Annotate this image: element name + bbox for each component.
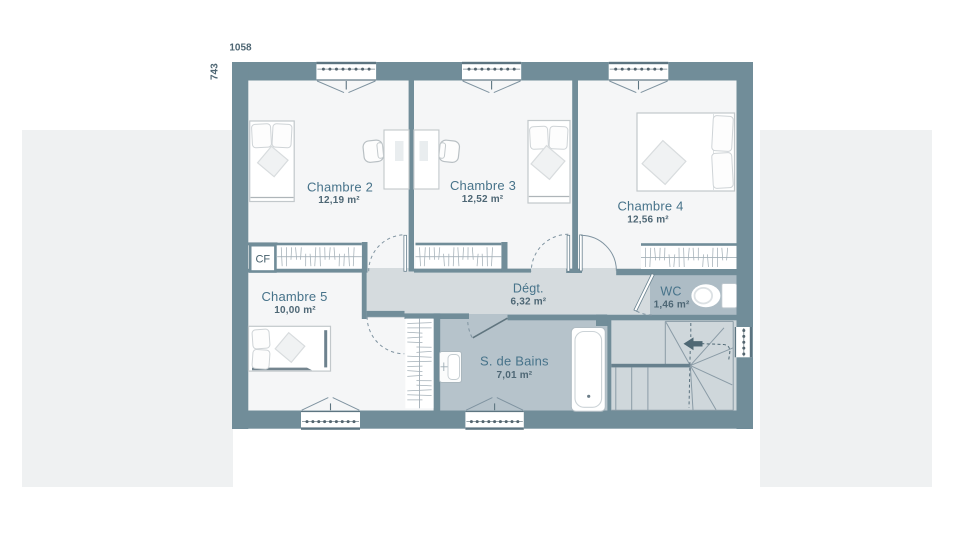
svg-text:1058: 1058 [229,43,252,54]
svg-text:7,01 m²: 7,01 m² [496,370,532,381]
svg-text:WC: WC [660,285,681,299]
svg-text:1,46 m²: 1,46 m² [654,299,690,310]
svg-text:12,56 m²: 12,56 m² [627,215,669,226]
svg-text:Dégt.: Dégt. [513,281,544,295]
svg-text:12,19 m²: 12,19 m² [318,195,360,206]
svg-text:Chambre 4: Chambre 4 [617,199,683,214]
svg-text:S. de Bains: S. de Bains [480,354,549,369]
svg-text:Chambre 3: Chambre 3 [450,178,516,193]
svg-text:743: 743 [210,63,221,80]
svg-text:12,52 m²: 12,52 m² [462,194,504,205]
svg-text:6,32 m²: 6,32 m² [510,297,546,308]
svg-text:Chambre 5: Chambre 5 [261,289,327,304]
svg-text:CF: CF [255,254,270,266]
svg-text:Chambre 2: Chambre 2 [307,179,373,194]
svg-text:10,00 m²: 10,00 m² [274,305,316,316]
